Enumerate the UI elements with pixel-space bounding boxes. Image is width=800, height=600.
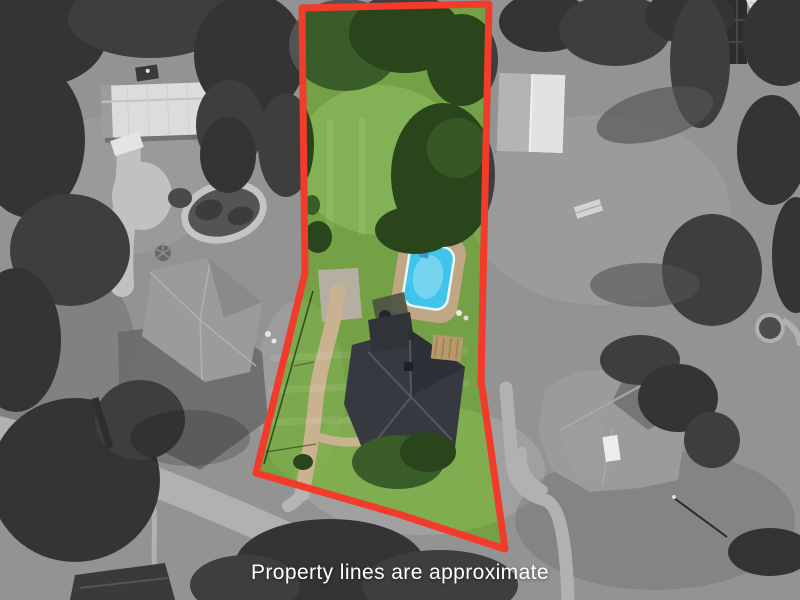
caption-text: Property lines are approximate: [0, 561, 800, 585]
aerial-photo-container: Property lines are approximate: [0, 0, 800, 600]
aerial-photo: [0, 0, 800, 600]
